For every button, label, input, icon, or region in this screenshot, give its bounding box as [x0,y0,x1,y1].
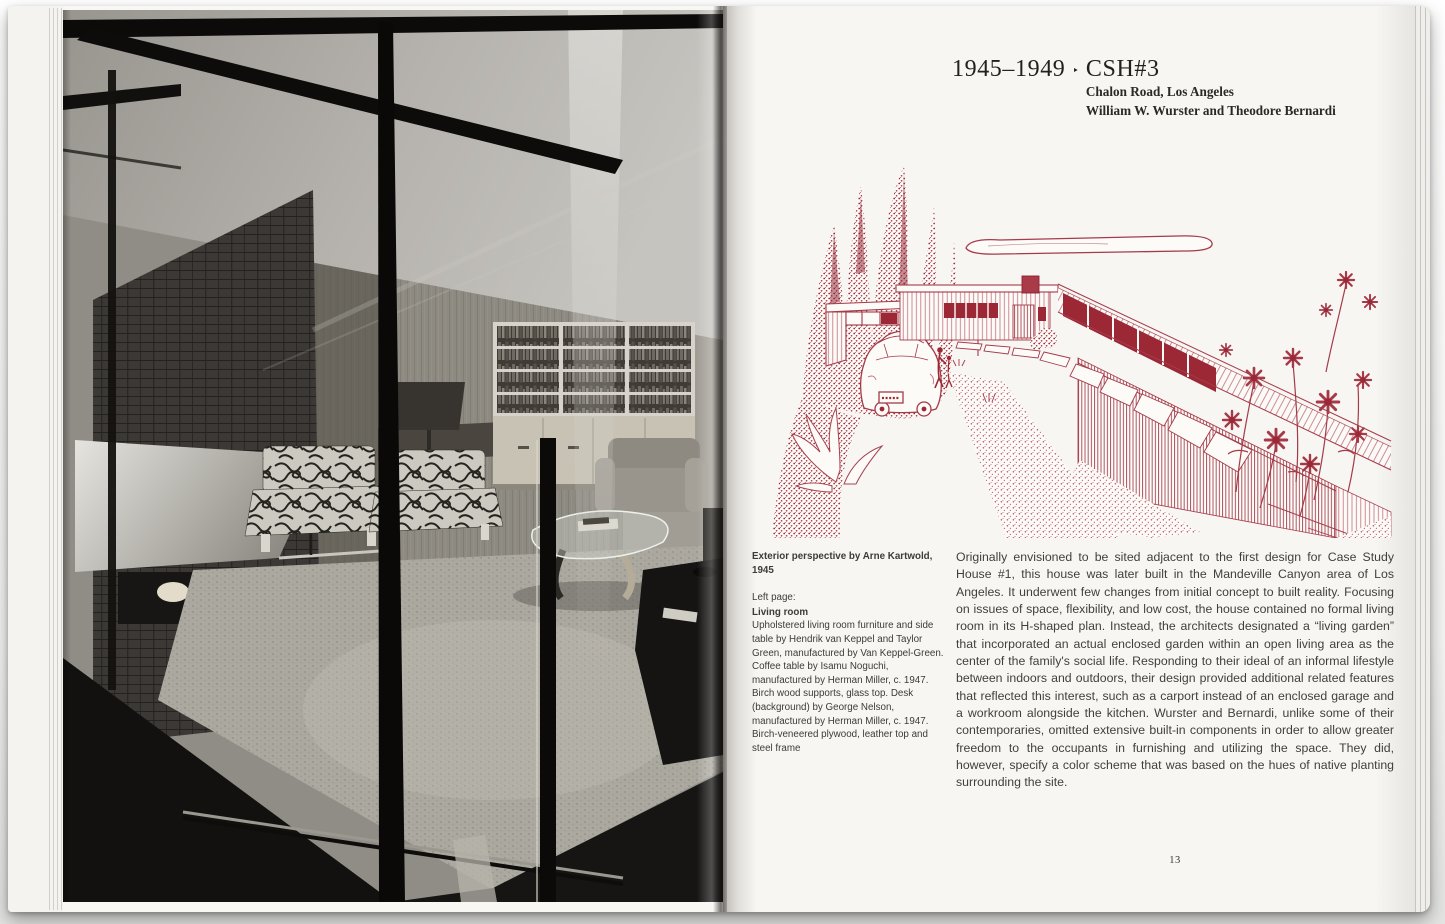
right-page: 1945–1949 ‣ CSH#3 Chalon Road, Los Angel… [723,6,1415,912]
lamp-stand [427,430,431,452]
carpet-highlight [303,620,683,800]
red-ink-drawing [748,152,1393,538]
left-page-edges [8,6,63,912]
page-number: 13 [956,855,1394,866]
exterior-perspective-drawing [748,152,1393,538]
cloud [966,236,1212,254]
spine-shadow [723,6,757,912]
thin-mullion [108,70,116,690]
caption-page-label: Left page: [752,591,950,605]
page-stack-lines [49,8,63,910]
body-text: Originally envisioned to be sited adjace… [956,549,1394,792]
photo-left-shade [63,10,71,902]
chapter-header: 1945–1949 ‣ CSH#3 Chalon Road, Los Angel… [952,56,1336,120]
book-gutter [713,6,727,912]
image-caption: Exterior perspective by Arne Kartwold, 1… [752,550,950,755]
lamp-shade [393,382,465,430]
door-shrub-2 [1030,336,1044,350]
triangle-bullet-icon: ‣ [1072,64,1079,77]
door-stile [540,438,556,902]
caption-body: Upholstered living room furniture and si… [752,619,950,755]
living-room-photo-illustration [63,10,723,902]
open-book: 1945–1949 ‣ CSH#3 Chalon Road, Los Angel… [8,6,1430,912]
left-page-photograph [63,10,723,902]
chapter-years: 1945–1949 [952,56,1065,83]
fire-glow [157,582,189,602]
chapter-title: CSH#3 [1086,56,1336,83]
right-page-edges [1415,6,1430,912]
caption-subject: Living room [752,606,950,620]
house-center [896,276,1058,340]
caption-credit: Exterior perspective by Arne Kartwold, 1… [752,550,950,577]
chapter-architects: William W. Wurster and Theodore Bernardi [1086,102,1336,121]
book-spread-photo: 1945–1949 ‣ CSH#3 Chalon Road, Los Angel… [0,0,1445,924]
chapter-address: Chalon Road, Los Angeles [1086,83,1336,102]
